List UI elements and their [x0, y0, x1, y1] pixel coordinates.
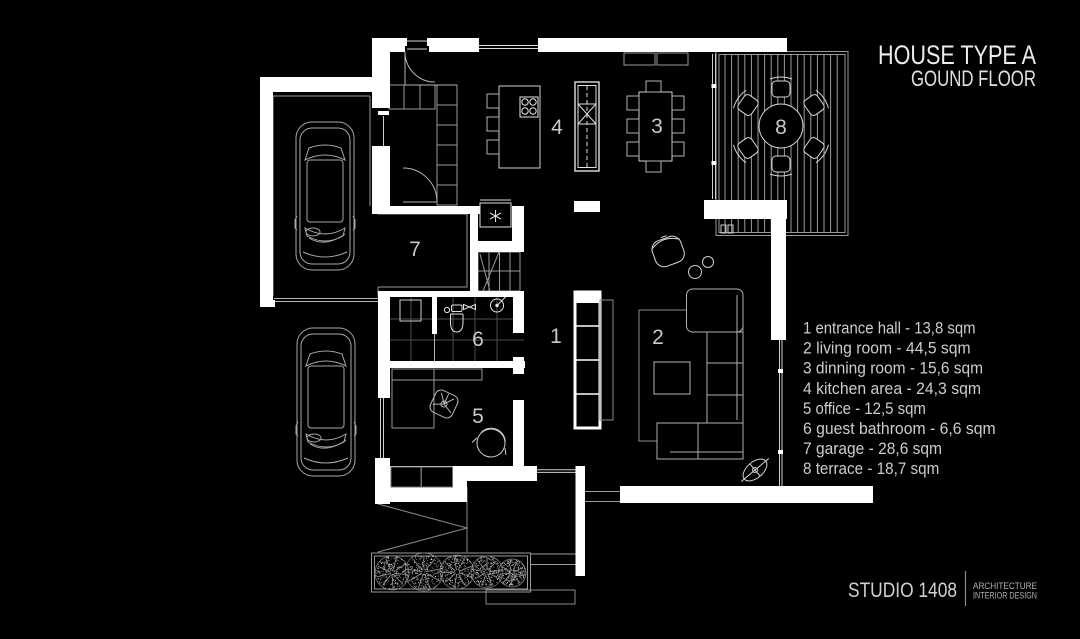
svg-text:1 entrance hall - 13,8 sqm: 1 entrance hall - 13,8 sqm — [803, 320, 976, 338]
svg-text:ARCHITECTURE: ARCHITECTURE — [973, 581, 1037, 591]
svg-text:5: 5 — [472, 405, 484, 428]
svg-text:4 kitchen area - 24,3 sqm: 4 kitchen area - 24,3 sqm — [803, 380, 981, 398]
svg-text:6: 6 — [472, 328, 484, 351]
svg-text:7 garage - 28,6 sqm: 7 garage - 28,6 sqm — [803, 440, 942, 458]
svg-text:7: 7 — [409, 238, 421, 261]
svg-text:3: 3 — [651, 115, 663, 138]
svg-text:GOUND FLOOR: GOUND FLOOR — [911, 66, 1036, 91]
svg-text:8 terrace - 18,7 sqm: 8 terrace - 18,7 sqm — [803, 460, 939, 478]
svg-text:INTERIOR DESIGN: INTERIOR DESIGN — [973, 591, 1037, 601]
svg-text:2: 2 — [652, 326, 664, 349]
svg-text:1: 1 — [550, 325, 562, 348]
svg-text:8: 8 — [775, 116, 787, 139]
svg-text:2 living room - 44,5 sqm: 2 living room - 44,5 sqm — [803, 340, 971, 358]
svg-text:3 dinning room - 15,6 sqm: 3 dinning room - 15,6 sqm — [803, 360, 983, 378]
svg-text:6 guest bathroom - 6,6 sqm: 6 guest bathroom - 6,6 sqm — [803, 420, 996, 438]
svg-text:4: 4 — [551, 116, 563, 139]
svg-text:5 office - 12,5 sqm: 5 office - 12,5 sqm — [803, 400, 926, 418]
svg-text:STUDIO 1408: STUDIO 1408 — [848, 579, 957, 602]
